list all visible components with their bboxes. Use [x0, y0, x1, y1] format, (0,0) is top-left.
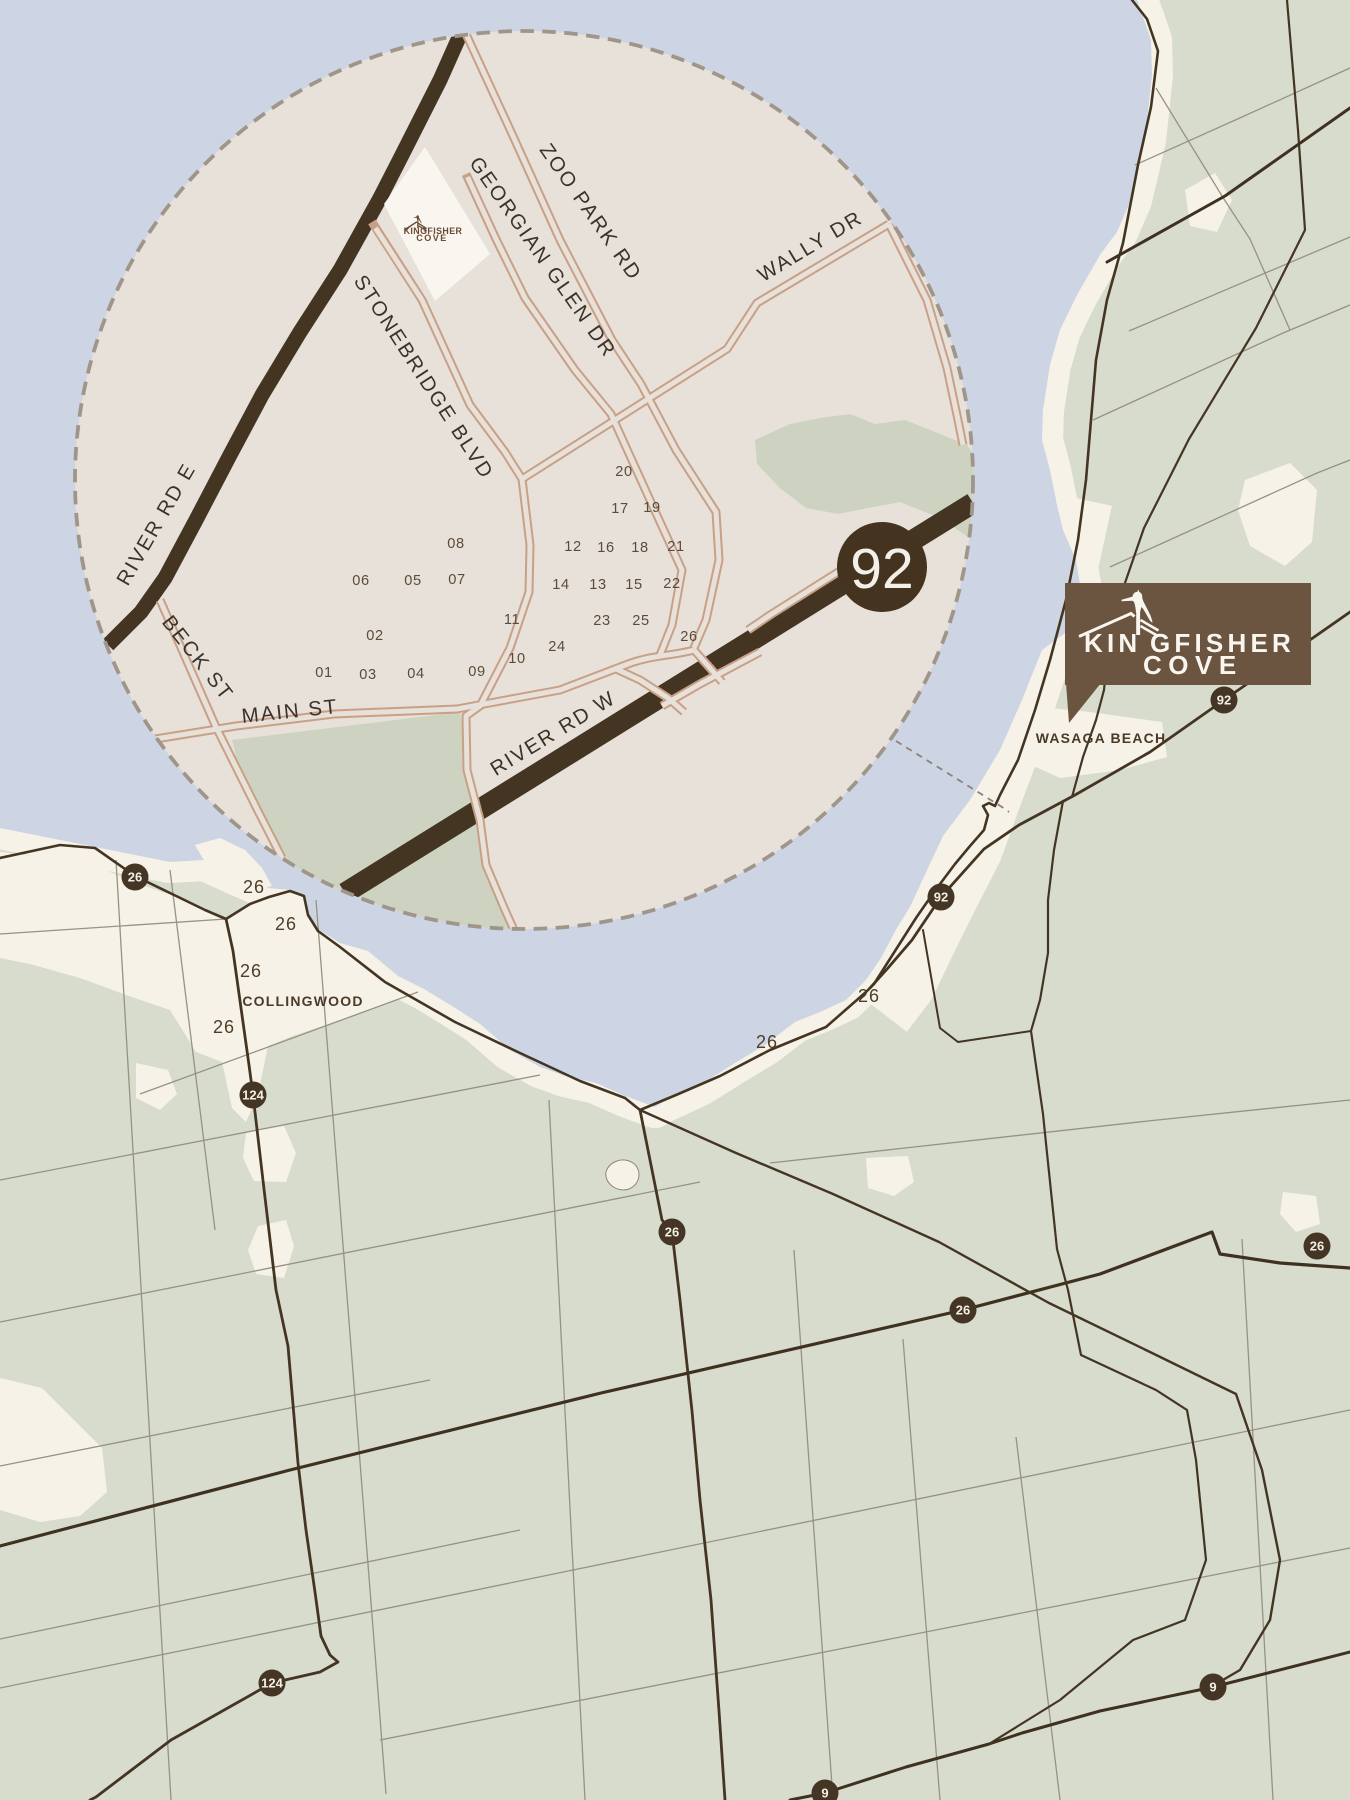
svg-text:24: 24 [548, 639, 565, 655]
svg-text:9: 9 [821, 1786, 828, 1800]
svg-text:92: 92 [1217, 693, 1231, 708]
svg-text:COLLINGWOOD: COLLINGWOOD [242, 993, 363, 1009]
svg-text:26: 26 [756, 1032, 778, 1052]
svg-text:92: 92 [934, 890, 948, 905]
svg-text:26: 26 [213, 1017, 235, 1037]
svg-text:06: 06 [352, 573, 369, 589]
svg-text:09: 09 [468, 664, 485, 680]
svg-text:23: 23 [593, 613, 610, 629]
svg-text:14: 14 [552, 577, 569, 593]
svg-text:04: 04 [407, 666, 424, 682]
svg-text:13: 13 [589, 577, 606, 593]
svg-text:25: 25 [632, 613, 649, 629]
svg-text:08: 08 [447, 536, 464, 552]
svg-text:26: 26 [240, 961, 262, 981]
svg-text:COVE: COVE [1143, 650, 1243, 680]
svg-text:26: 26 [275, 914, 297, 934]
svg-text:05: 05 [404, 573, 421, 589]
svg-text:16: 16 [597, 540, 614, 556]
svg-text:26: 26 [858, 986, 880, 1006]
svg-text:26: 26 [956, 1303, 970, 1318]
svg-text:9: 9 [1209, 1680, 1216, 1695]
svg-text:20: 20 [615, 464, 632, 480]
svg-text:COVE: COVE [416, 233, 448, 243]
svg-text:26: 26 [665, 1225, 679, 1240]
svg-text:12: 12 [564, 539, 581, 555]
svg-text:26: 26 [680, 629, 697, 645]
svg-text:124: 124 [242, 1088, 264, 1103]
svg-text:02: 02 [366, 628, 383, 644]
svg-text:22: 22 [663, 576, 680, 592]
svg-text:17: 17 [611, 501, 628, 517]
svg-text:92: 92 [850, 537, 913, 601]
svg-text:15: 15 [625, 577, 642, 593]
svg-text:KIN: KIN [1084, 628, 1141, 658]
svg-text:11: 11 [504, 612, 520, 628]
svg-text:21: 21 [667, 539, 684, 555]
svg-text:26: 26 [1310, 1239, 1324, 1254]
svg-text:124: 124 [261, 1676, 283, 1691]
svg-text:10: 10 [508, 651, 525, 667]
svg-text:07: 07 [448, 572, 465, 588]
svg-text:WASAGA BEACH: WASAGA BEACH [1036, 730, 1167, 746]
svg-text:19: 19 [643, 500, 660, 516]
svg-text:26: 26 [128, 870, 142, 885]
svg-text:26: 26 [243, 877, 265, 897]
svg-text:03: 03 [359, 667, 376, 683]
svg-text:01: 01 [315, 665, 332, 681]
svg-text:18: 18 [631, 540, 648, 556]
